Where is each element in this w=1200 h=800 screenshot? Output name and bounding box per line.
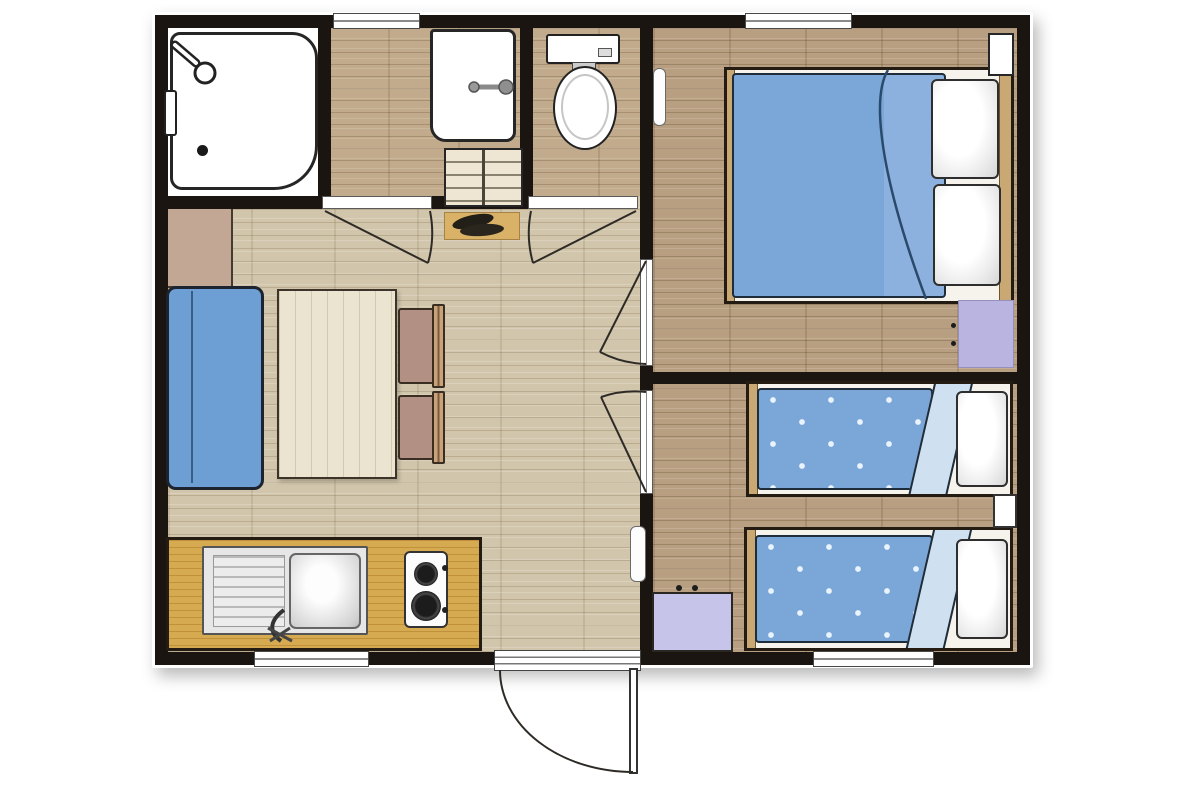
window-bedroom-double — [745, 13, 852, 29]
single-bed-b — [744, 527, 1013, 651]
dresser — [652, 592, 733, 652]
radiator-hallway — [630, 526, 646, 582]
nightstand-knob — [951, 323, 956, 328]
chair-back — [432, 391, 445, 464]
bathroom-door-threshold — [322, 196, 432, 209]
wc-door-threshold — [528, 196, 638, 209]
pillow — [933, 184, 1001, 286]
toilet-seat — [561, 74, 609, 140]
wall-wc-bedroom — [640, 15, 653, 209]
duvet — [755, 535, 933, 643]
sideboard — [168, 209, 233, 288]
dining-table — [277, 289, 397, 479]
entrance-door-threshold — [494, 650, 641, 671]
hob-burner-large — [411, 591, 441, 621]
pillow — [956, 539, 1008, 639]
nightstand-double — [958, 300, 1014, 368]
wall-shower-right — [318, 15, 331, 209]
nightstand-knob — [951, 341, 956, 346]
wall-hall-bedroom-upper — [640, 209, 653, 259]
window-bathroom — [333, 13, 420, 29]
wall-cabinet — [988, 33, 1014, 76]
pillow — [956, 391, 1008, 487]
bedroom-double-door-threshold — [640, 259, 653, 366]
wall-top — [155, 15, 1030, 28]
chair-seat — [398, 395, 436, 460]
pillow — [931, 79, 999, 179]
chair-seat — [398, 308, 436, 384]
duvet — [732, 73, 946, 298]
window-kitchen — [254, 651, 369, 667]
entrance-door-swing — [500, 670, 633, 772]
sofa — [166, 286, 264, 490]
dresser-knob — [692, 585, 698, 591]
dining-chair — [398, 304, 448, 388]
bedroom-twin-door-threshold — [640, 390, 653, 494]
window-bedroom-twin — [813, 651, 934, 667]
kitchen-sink — [202, 546, 368, 635]
hob — [404, 551, 448, 628]
duvet — [757, 388, 933, 490]
floor-plan — [0, 0, 1200, 800]
sofa-seam — [191, 291, 193, 483]
storage-shelf-unit — [444, 148, 523, 207]
hob-knob — [442, 607, 448, 613]
wall-bath-bottom — [155, 196, 330, 209]
shower-tray — [170, 32, 318, 190]
dining-chair — [398, 391, 448, 464]
wall-right — [1017, 15, 1030, 665]
hob-burner-small — [414, 562, 438, 586]
toilet-flush-button — [598, 48, 612, 57]
sink-basin — [289, 553, 361, 629]
chair-back — [432, 304, 445, 388]
single-bed-a — [746, 381, 1013, 497]
hob-knob — [442, 565, 448, 571]
dresser-knob — [676, 585, 682, 591]
nightstand-twin — [993, 494, 1017, 528]
shower-controls — [164, 90, 177, 136]
sink-drainboard — [213, 555, 285, 627]
double-bed — [724, 67, 1014, 304]
washbasin — [430, 29, 516, 142]
entrance-door-leaf — [629, 668, 638, 774]
headboard — [999, 70, 1013, 301]
shower-drain — [197, 145, 208, 156]
radiator-bedroom-double — [653, 68, 666, 126]
